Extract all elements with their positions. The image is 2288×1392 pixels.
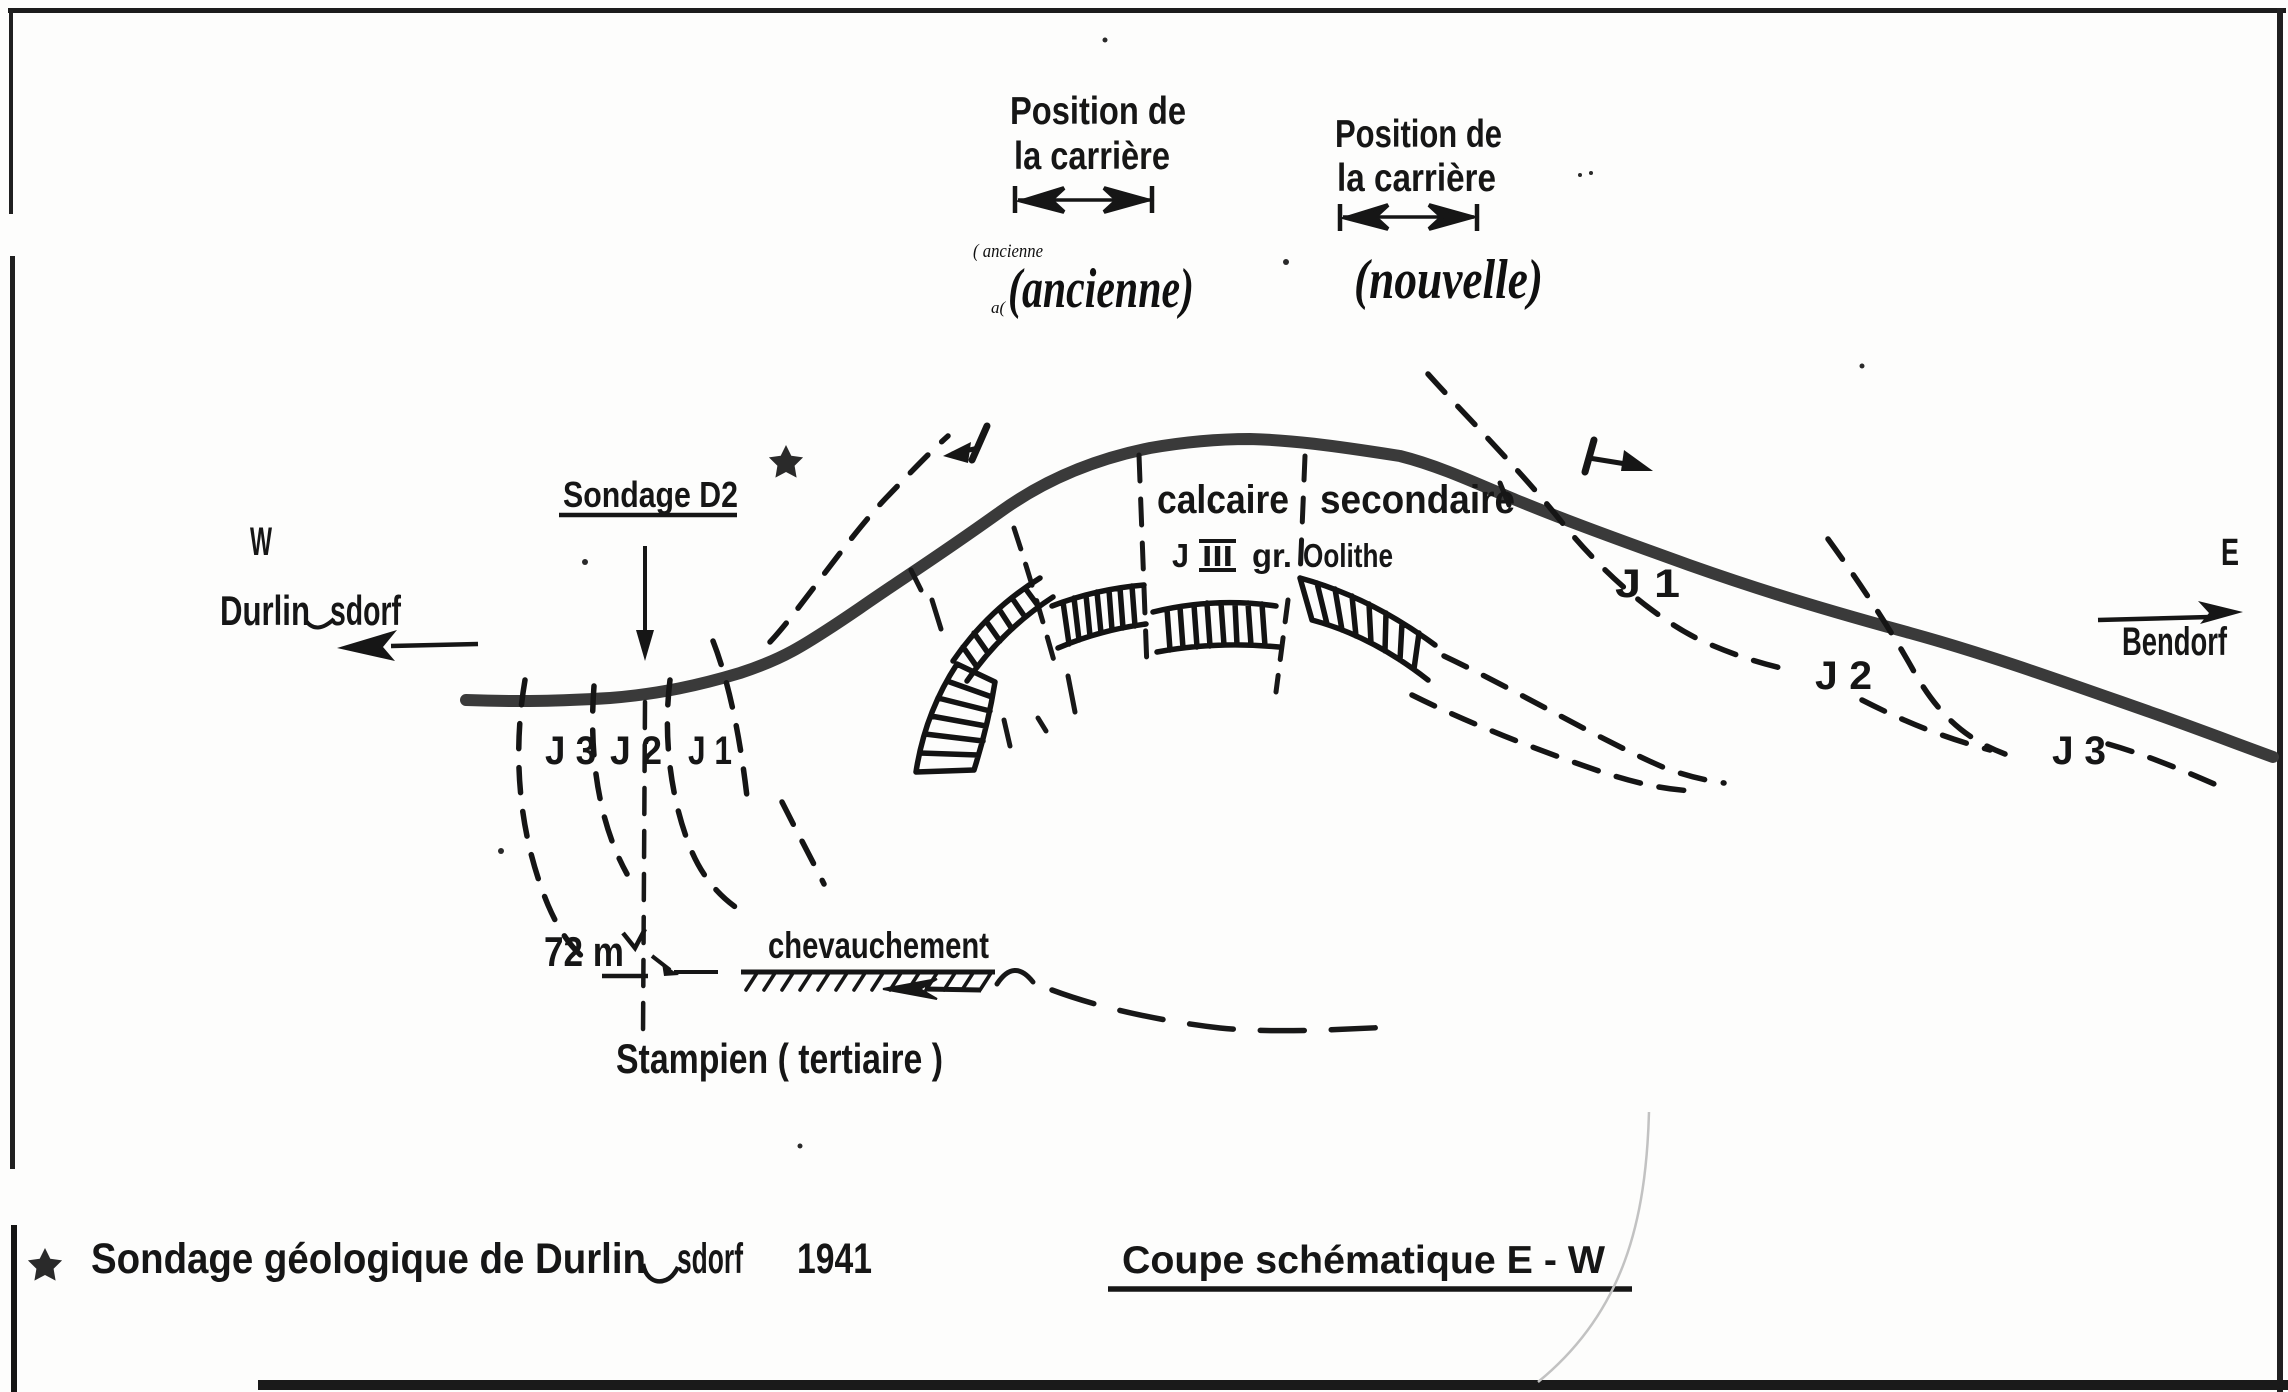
- svg-text:a(: a(: [991, 298, 1007, 317]
- svg-text:Bendorf: Bendorf: [2122, 620, 2227, 664]
- svg-text:J 1: J 1: [1615, 562, 1680, 606]
- svg-text:J 3: J 3: [2052, 729, 2106, 773]
- svg-text:72 m: 72 m: [544, 928, 624, 975]
- svg-text:1941: 1941: [797, 1235, 872, 1283]
- svg-text:J: J: [1172, 537, 1189, 574]
- svg-text:J 1: J 1: [688, 729, 732, 773]
- svg-text:Sondage D2: Sondage D2: [563, 474, 738, 515]
- svg-text:gr.: gr.: [1252, 537, 1292, 574]
- svg-text:W: W: [250, 520, 272, 564]
- svg-text:(nouvelle): (nouvelle): [1354, 249, 1543, 311]
- svg-text:Sondage géologique de Durlin: Sondage géologique de Durlin: [91, 1235, 646, 1283]
- svg-text:Position de: Position de: [1010, 90, 1186, 133]
- svg-text:chevauchement: chevauchement: [768, 925, 989, 966]
- svg-text:Durlin: Durlin: [220, 587, 310, 634]
- svg-text:J 2: J 2: [1815, 654, 1872, 698]
- svg-text:secondaire: secondaire: [1320, 478, 1515, 522]
- svg-text:E: E: [2221, 532, 2239, 574]
- svg-text:la carrière: la carrière: [1337, 157, 1496, 200]
- svg-text:calcaire: calcaire: [1157, 478, 1289, 522]
- svg-text:Oolithe: Oolithe: [1303, 537, 1393, 574]
- svg-text:J 2: J 2: [610, 729, 662, 773]
- svg-text:Position de: Position de: [1335, 113, 1502, 156]
- svg-text:J 3: J 3: [545, 729, 596, 773]
- svg-text:III: III: [1202, 541, 1233, 573]
- svg-text:Coupe schématique E - W: Coupe schématique E - W: [1122, 1239, 1605, 1282]
- svg-text:(ancienne): (ancienne): [1008, 258, 1194, 320]
- svg-text:la carrière: la carrière: [1014, 135, 1170, 178]
- svg-text:sdorf: sdorf: [677, 1235, 743, 1283]
- svg-text:Stampien ( tertiaire ): Stampien ( tertiaire ): [616, 1035, 943, 1082]
- svg-text:sdorf: sdorf: [330, 587, 402, 634]
